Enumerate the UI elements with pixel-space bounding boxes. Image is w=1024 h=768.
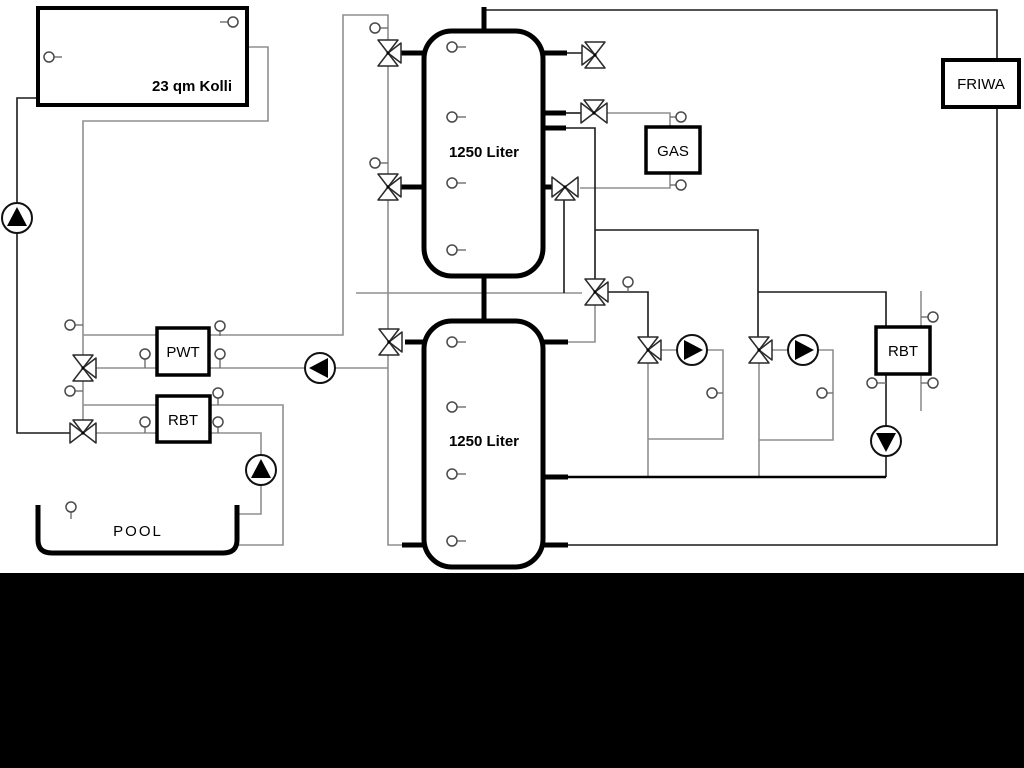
pump-pool xyxy=(246,455,276,485)
gas-label: GAS xyxy=(657,143,689,160)
pwt-label: PWT xyxy=(166,344,199,361)
buffer-tank-top-label: 1250 Liter xyxy=(449,144,519,161)
pump-circuit-1 xyxy=(677,335,707,365)
buffer-tank-bottom-label: 1250 Liter xyxy=(449,433,519,450)
solar-collector-label: 23 qm Kolli xyxy=(152,78,232,95)
pool-label: POOL xyxy=(113,523,163,540)
pump-circuit-2 xyxy=(788,335,818,365)
friwa-label: FRIWA xyxy=(957,76,1005,93)
pump-pwt xyxy=(305,353,335,383)
schematic-page: 23 qm Kolli 1250 Liter 1250 Liter PWT RB… xyxy=(0,0,1024,768)
letterbox-bottom xyxy=(0,573,1024,768)
pump-rbt-right xyxy=(871,426,901,456)
rbt-left-label: RBT xyxy=(168,412,198,429)
hydraulic-schematic: 23 qm Kolli 1250 Liter 1250 Liter PWT RB… xyxy=(0,0,1024,768)
rbt-right-label: RBT xyxy=(888,343,918,360)
pump-solar xyxy=(2,203,32,233)
